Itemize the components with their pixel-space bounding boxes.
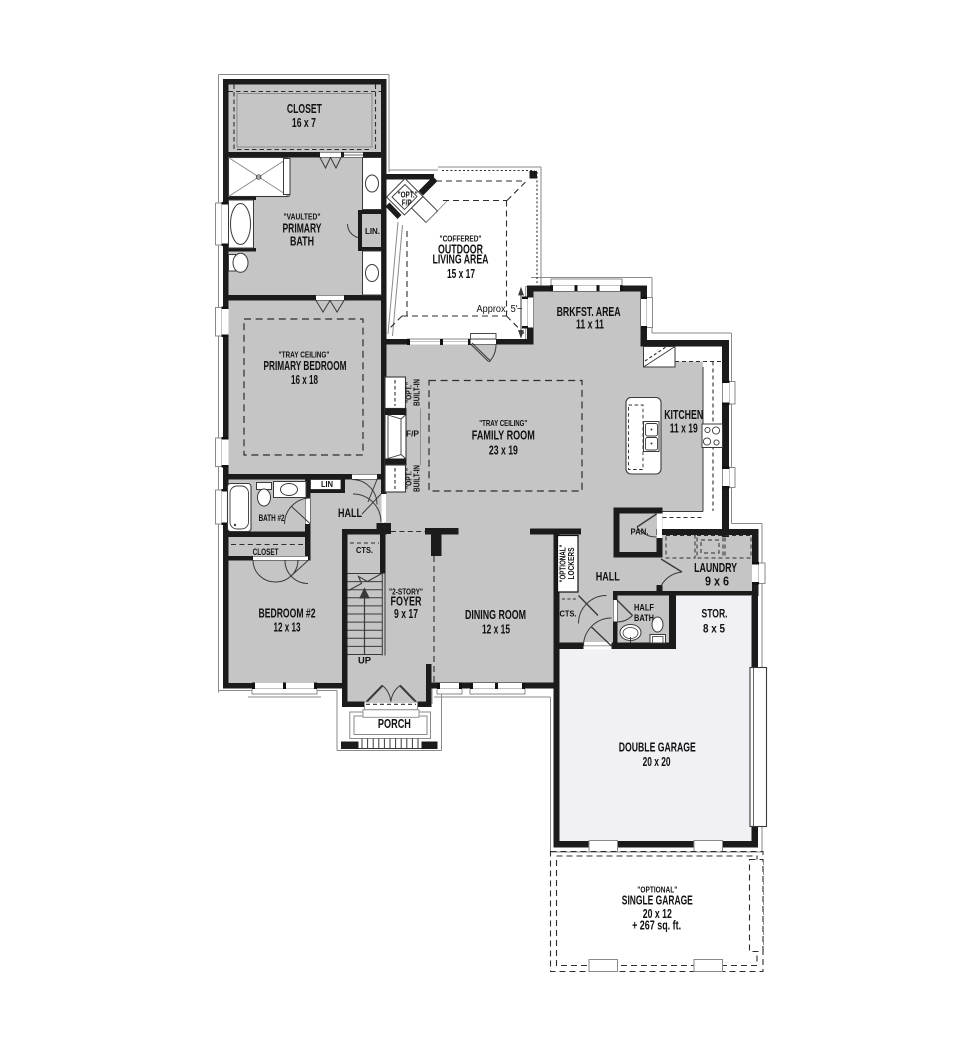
svg-text:LIN: LIN (321, 480, 333, 489)
svg-text:SINGLE GARAGE: SINGLE GARAGE (622, 894, 693, 908)
svg-text:"TRAY CEILING": "TRAY CEILING" (479, 418, 527, 428)
svg-text:"VAULTED": "VAULTED" (284, 212, 321, 222)
svg-text:16 x 18: 16 x 18 (291, 373, 318, 387)
svg-text:KITCHEN: KITCHEN (664, 408, 703, 422)
svg-text:BUILT-IN: BUILT-IN (413, 465, 422, 492)
svg-text:HALL: HALL (596, 572, 620, 584)
svg-text:STOR.: STOR. (702, 607, 728, 621)
svg-text:PRIMARY: PRIMARY (283, 222, 322, 236)
svg-text:12 x 15: 12 x 15 (482, 623, 510, 637)
svg-text:PRIMARY BEDROOM: PRIMARY BEDROOM (264, 359, 347, 373)
svg-text:BATH: BATH (634, 613, 654, 624)
svg-text:9 x 6: 9 x 6 (705, 575, 729, 589)
svg-text:11 x 19: 11 x 19 (670, 422, 698, 436)
svg-text:CTS.: CTS. (560, 609, 577, 619)
svg-text:Approx. 5': Approx. 5' (477, 304, 518, 315)
svg-text:23 x 19: 23 x 19 (489, 444, 518, 458)
svg-text:BUILT-IN: BUILT-IN (413, 379, 422, 406)
svg-text:LOCKERS: LOCKERS (567, 547, 576, 580)
svg-text:HALF: HALF (634, 603, 654, 614)
svg-text:LIVING AREA: LIVING AREA (433, 253, 489, 267)
svg-text:12 x 13: 12 x 13 (274, 621, 301, 635)
svg-text:UP: UP (358, 656, 371, 666)
svg-text:DINING ROOM: DINING ROOM (465, 608, 526, 622)
svg-text:LAUNDRY: LAUNDRY (694, 561, 737, 575)
svg-text:CTS.: CTS. (356, 545, 373, 555)
svg-text:BATH #2: BATH #2 (259, 513, 285, 524)
svg-text:F/P: F/P (402, 199, 412, 208)
svg-text:PORCH: PORCH (378, 717, 411, 731)
svg-text:20 x 20: 20 x 20 (643, 755, 671, 769)
svg-text:FAMILY ROOM: FAMILY ROOM (472, 429, 535, 443)
svg-text:PAN.: PAN. (631, 527, 649, 537)
svg-text:BATH: BATH (290, 235, 314, 249)
svg-text:15 x 17: 15 x 17 (447, 267, 475, 281)
svg-text:9 x 17: 9 x 17 (394, 607, 418, 621)
svg-text:LIN.: LIN. (365, 227, 380, 236)
svg-text:+ 267 sq. ft.: + 267 sq. ft. (632, 918, 681, 932)
svg-text:BEDROOM #2: BEDROOM #2 (259, 607, 316, 621)
svg-text:HALL: HALL (338, 508, 362, 520)
svg-text:11 x 11: 11 x 11 (576, 317, 604, 331)
svg-text:F/P: F/P (406, 430, 420, 439)
svg-text:CLOSET: CLOSET (253, 547, 279, 558)
svg-text:"TRAY CEILING": "TRAY CEILING" (279, 350, 330, 360)
svg-text:DOUBLE GARAGE: DOUBLE GARAGE (619, 740, 696, 754)
svg-text:CLOSET: CLOSET (287, 102, 322, 116)
svg-text:16 x 7: 16 x 7 (292, 116, 316, 130)
svg-text:8 x 5: 8 x 5 (703, 622, 725, 636)
